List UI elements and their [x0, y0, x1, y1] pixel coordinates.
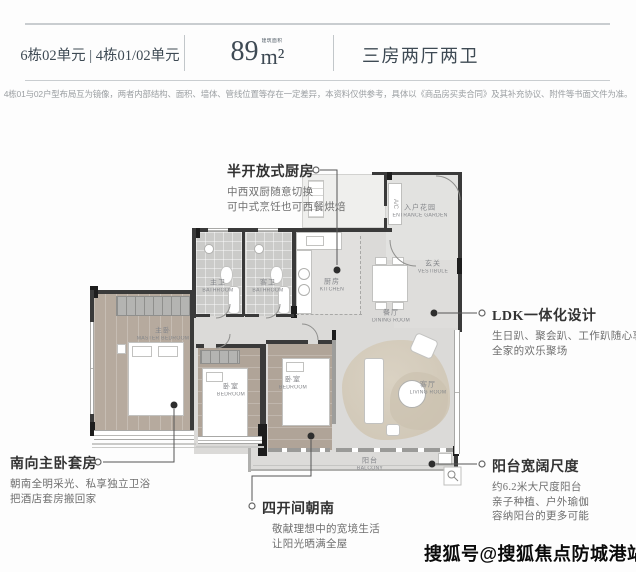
bedroom2-sliding-door [268, 448, 330, 452]
south-facing-note: 四开间朝南 敬献理想中的宽境生活 让阳光晒满全屋 [262, 498, 380, 552]
label-master-bedroom: 主卧 MASTER BEDROOM [132, 327, 194, 344]
area-note: 建筑面积 [262, 39, 283, 45]
wall [94, 290, 194, 294]
guest-bath-basin [254, 244, 264, 254]
bath-window [258, 228, 278, 232]
disclaimer-text: 4栋01与02户型布局互为镜像，两者内部结构、面积、墙体、管线位置等存在一定差异… [0, 88, 636, 100]
ldk-note-title: LDK一体化设计 [492, 305, 636, 325]
wall-column [457, 258, 462, 274]
window-sill [92, 443, 196, 445]
living-stool [386, 424, 400, 436]
stove-burner-2 [298, 284, 310, 296]
header-divider-left [184, 35, 185, 71]
wall [216, 344, 264, 348]
window-sill [196, 446, 264, 448]
label-balcony: 阳台 BALCONY [355, 457, 386, 474]
label-kitchen: 厨房 KITCHEN [318, 278, 346, 295]
living-window [454, 330, 460, 454]
wall [276, 314, 294, 317]
kitchen-note-title: 半开放式厨房 [227, 161, 346, 181]
bedroom1-pillow [206, 372, 223, 382]
area-unit: m² [261, 45, 285, 68]
sofa [364, 358, 384, 424]
ldk-note: LDK一体化设计 生日趴、聚会趴、工作趴随心享 全家的欢乐聚场 [492, 305, 636, 359]
wall [292, 228, 392, 232]
area-figure: 89 建筑面积 m² [188, 36, 328, 68]
master-pillow-1 [132, 346, 152, 357]
header-bottom-rule [25, 80, 610, 81]
wall [226, 314, 244, 317]
label-vestibule: 玄关 VESTIBULE [415, 260, 451, 277]
balcony-rail [248, 469, 458, 471]
label-dining: 餐厅 DINING ROOM [369, 309, 414, 326]
layout-type: 三房两厅两卫 [333, 42, 508, 68]
dining-chair-1 [375, 257, 387, 265]
dining-table [372, 265, 408, 302]
master-pillow-2 [158, 346, 178, 357]
kitchen-counter-side [296, 250, 312, 314]
kitchen-open-boundary [296, 314, 362, 315]
wall [292, 228, 296, 318]
kitchen-note: 半开放式厨房 中西双厨随意切换 可中式烹饪也可西餐烘焙 [227, 161, 346, 215]
stove-burner-1 [298, 268, 310, 280]
master-bath-basin [204, 244, 214, 254]
wall [190, 294, 194, 434]
wall [242, 232, 245, 316]
balcony-planter [438, 453, 452, 465]
wall [458, 172, 462, 332]
master-wardrobe [116, 296, 192, 316]
bath-window [208, 228, 228, 232]
wall [196, 344, 204, 348]
wall [384, 172, 387, 206]
floor-balcony [250, 450, 456, 470]
master-suite-note-title: 南向主卧套房 [10, 453, 150, 473]
south-facing-note-title: 四开间朝南 [262, 498, 380, 518]
floorplan-page: 6栋02单元 | 4栋01/02单元 89 建筑面积 m² 三房两厅两卫 4栋0… [0, 0, 636, 572]
master-side-window [90, 322, 94, 414]
master-nightstand [117, 344, 126, 354]
bedroom1-wardrobe [200, 350, 240, 364]
wall [196, 314, 210, 317]
label-bedroom1: 卧室 BEDROOM [214, 383, 247, 400]
label-master-bath: 主卫 BATHROOM [200, 279, 237, 296]
dining-chair-2 [392, 257, 404, 265]
sohu-watermark: 搜狐号@搜狐焦点防城港站 [424, 540, 636, 566]
area-number: 89 [230, 36, 258, 68]
master-bay-window [94, 430, 194, 440]
balcony-note: 阳台宽阔尺度 约6.2米大尺度阳台 亲子种植、户外瑜伽 容纳阳台的更多可能 [492, 456, 589, 525]
balcony-note-title: 阳台宽阔尺度 [492, 456, 589, 476]
label-bedroom2: 卧室 BEDROOM [276, 376, 309, 393]
label-guest-bath: 客卫 BATHROOM [250, 279, 287, 296]
label-entrance-garden: 入户花园 ENTRANCE GARDEN [388, 204, 453, 221]
top-rule [25, 23, 610, 25]
balcony-sliding-door [336, 448, 454, 452]
window-sill [92, 447, 196, 448]
wall [266, 340, 308, 344]
unit-numbers: 6栋02单元 | 4栋01/02单元 [20, 44, 180, 65]
master-suite-note: 南向主卧套房 朝南全明采光、私享独立卫浴 把酒店套房搬回家 [10, 453, 150, 507]
wall [245, 314, 259, 317]
bedroom1-window [198, 436, 262, 444]
wall-partition [332, 330, 336, 424]
bedroom2-pillow [286, 362, 304, 372]
wall-column [332, 330, 336, 340]
label-living-room: 客厅 LIVING ROOM [406, 381, 449, 398]
kitchen-open-boundary [360, 236, 361, 314]
kitchen-sink [306, 236, 324, 246]
